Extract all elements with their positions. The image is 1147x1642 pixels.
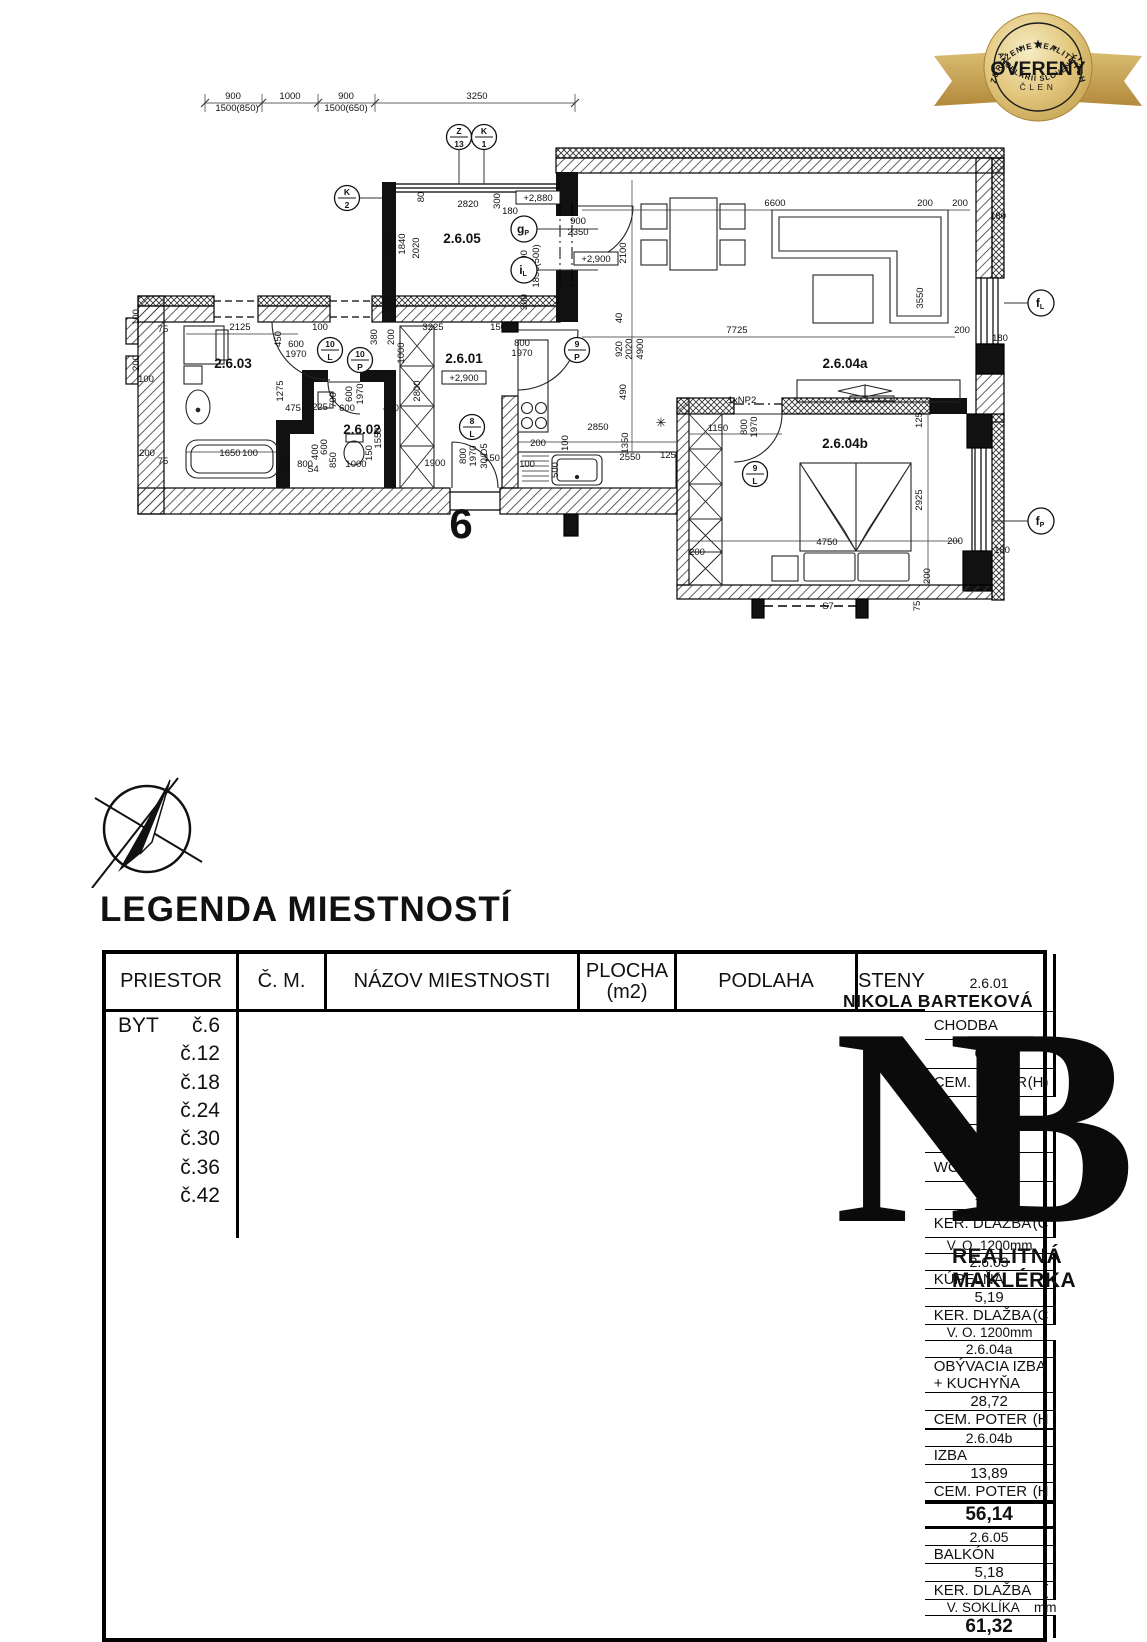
header-nazov: NÁZOV MIESTNOSTI [327,954,580,1012]
dim-label: 200 [922,568,933,584]
podlaha-text: CEM. POTER [934,1411,1027,1428]
dim-label: 850 [328,452,339,468]
dim-label: 200 [139,448,155,459]
priestor-number: č.12 [180,1042,220,1066]
dim-label: 1000 [279,91,300,102]
dim-label: 900 [225,91,241,102]
legend-title: LEGENDA MIESTNOSTÍ [100,890,511,930]
plocha-cell: 5,18 [925,1564,1057,1582]
dim-label: 900 [338,91,354,102]
compass-needle-light [140,780,170,854]
dim-label: 150 [490,322,506,333]
room-label: 2.6.03 [214,356,252,371]
marker-bottom: L [469,429,474,439]
dim-label: 1970 [511,348,532,359]
dim-label: 2100 [618,242,629,263]
dim-label: 1970 [468,445,479,466]
flat-number: 6 [449,500,472,547]
podlaha-text: KER. DLAŽBA [934,1582,1032,1599]
dim-label: 900 [570,216,586,227]
podlaha-text: CEM. POTER [934,1483,1027,1500]
bedroom-top-wall [677,398,930,414]
cm-cell: 2.6.05 [925,1529,1057,1546]
letter-marker-circle [1028,508,1054,534]
realtor-role: REALITNÁ MAKLÉRKA [952,1245,1147,1293]
dim-label: 2020 [624,338,635,359]
dim-label: 3550 [915,287,926,308]
marker-bottom: 13 [454,139,464,149]
dim-label: 180 [992,333,1008,344]
dim-label: 125 [914,412,925,428]
header-plocha: PLOCHA (m2) [580,954,677,1012]
dim-label: 2800 [412,380,423,401]
dim-label: 3250 [466,91,487,102]
priestor-cell: č.42 [106,1182,236,1210]
priestor-number: č.24 [180,1099,220,1123]
priestor-number: č.30 [180,1127,220,1151]
annotation-label: 1xNP2 [728,395,757,406]
steny-cell: V. O. 1200mm [925,1325,1057,1341]
dim-label: 2820 [457,199,478,210]
dim-label: 180 [384,295,395,311]
dim-label: 100 [138,374,154,385]
priestor-number: č.18 [180,1071,220,1095]
room-label: 2.6.01 [445,351,483,366]
podlaha-code: (C [1033,1307,1049,1324]
byt-label: BYT [118,1014,159,1038]
dim-label: 1500(850) [215,103,258,114]
dim-label: 200 [917,198,933,209]
dim-label: 200 [530,438,546,449]
overeny-badge-svg: ZDRUŽENIE REALITNÝCH ★ ★ ★ OVERENÝ ČLEN … [930,6,1146,132]
dim-label: 7725 [726,325,747,336]
header-podlaha: PODLAHA [677,954,858,1012]
dim-label: 2550 [619,452,640,463]
compass-needle-dark [118,780,170,872]
dim-label: 2350 [567,227,588,238]
letter-marker-circle [1028,290,1054,316]
dim-label: 490 [618,384,629,400]
dim-label: 40 [614,313,625,324]
plocha-cell: 28,72 [925,1393,1057,1411]
dim-label: 400 [383,403,399,414]
marker-top: 8 [470,416,475,426]
dim-label: 180 [994,545,1010,556]
podlaha-text: KER. DLAŽBA [934,1307,1032,1324]
priestor-cell: č.30 [106,1125,236,1153]
dim-label: 500 [550,462,561,478]
marker-top: 10 [355,349,365,359]
dim-label: 125 [660,450,676,461]
dim-label: 1150 [708,423,728,434]
marker-top: Z [456,126,461,136]
dim-label: 900 [281,455,292,471]
elevation-label: +2,880 [523,193,552,204]
dim-label: 200 [947,536,963,547]
header-cm: Č. M. [239,954,327,1012]
dim-label: 200 [131,355,142,371]
podlaha-code: ( [1043,1582,1048,1599]
badge-sub-text: ČLEN [1020,82,1057,92]
room-label: 2.6.04a [822,356,868,371]
dim-label: 100 [312,322,328,333]
priestor-cell: č.36 [106,1153,236,1181]
dim-label: 6600 [764,198,785,209]
dim-label: 1920 [383,233,394,254]
podlaha-cell: KER. DLAŽBA( [925,1582,1057,1600]
dim-label: 1500(650) [324,103,367,114]
dim-label: 200 [952,198,968,209]
marker-bottom: 1 [482,139,487,149]
dim-label: 100 [131,309,142,325]
dim-label: 2125 [229,322,250,333]
dim-label: 75 [912,601,923,612]
cm-cell: 2.6.04b [925,1430,1057,1447]
plocha-cell: 13,89 [925,1465,1057,1483]
dim-label: 450 [273,331,284,347]
podlaha-code: (H [1033,1411,1049,1428]
dim-label: 1350 [620,432,631,453]
podlaha-cell: CEM. POTER(H [925,1483,1057,1501]
annotation-label: ✳ [656,415,667,430]
marker-bottom: L [327,352,332,362]
dim-label: 100 [519,459,535,470]
marker-top: K [481,126,488,136]
dim-label: 1275 [275,380,286,401]
priestor-cell: č.18 [106,1069,236,1097]
dim-label: 180 [502,206,518,217]
dim-label: 30/D5 [479,443,490,468]
dim-label: 100 [560,435,571,451]
north-compass-svg [90,770,208,888]
dim-label: 1650 [219,448,240,459]
marker-top: 9 [575,339,580,349]
podlaha-cell: CEM. POTER(H [925,1411,1057,1429]
nazov-cell: IZBA [925,1447,1057,1465]
priestor-cell: č.12 [106,1040,236,1068]
dim-label: 380 [369,329,380,345]
header-priestor: PRIESTOR [106,954,239,1012]
steny-cell: V. SOKLÍKA mm [925,1600,1057,1616]
dim-label: 100 [242,448,258,459]
overeny-badge: ZDRUŽENIE REALITNÝCH ★ ★ ★ OVERENÝ ČLEN … [930,6,1146,132]
dim-label: 75 [158,456,169,467]
letter-marker-circle [511,257,537,283]
dim-label: 2925 [914,489,925,510]
marker-top: K [344,187,351,197]
badge-stars: ★ [1033,37,1044,51]
marker-top: 9 [753,463,758,473]
elevation-label: +2,900 [581,254,610,265]
dim-label: 700 [328,392,339,408]
dim-label: 475 [285,403,301,414]
priestor-number: č.42 [180,1184,220,1208]
room-label: 2.6.04b [822,436,868,451]
dim-label: 300 [492,193,503,209]
priestor-cell: č.24 [106,1097,236,1125]
dim-label: 2850 [587,422,608,433]
priestor-cell: BYTč.6 [106,1012,236,1040]
header-plocha-line1: PLOCHA [586,961,668,982]
dim-label: 1840 [397,233,408,254]
marker-bottom: L [752,476,757,486]
dim-label: 180 [990,211,1006,222]
exterior-walls [126,148,1004,618]
annotation-label: S7 [822,601,834,612]
north-compass [90,770,208,888]
dim-label: 1900 [424,458,445,469]
dim-label: 600 [339,403,355,414]
room-label: 2.6.05 [443,231,481,246]
podlaha-code: (H [1033,1483,1049,1500]
marker-top: 10 [325,339,335,349]
dim-label: 3225 [422,322,443,333]
nazov-cell: OBÝVACIA IZBA + KUCHYŇA [925,1358,1057,1393]
marker-bottom: P [357,362,363,372]
priestor-number: č.6 [192,1014,220,1038]
dim-label: 600 [344,386,355,402]
dim-label: 2020 [411,237,422,258]
annotation-label: S4 [307,464,319,475]
podlaha-cell: KER. DLAŽBA(C [925,1307,1057,1325]
dim-label: 1970 [285,349,306,360]
plocha-cell: 61,32 [925,1616,1057,1638]
marker-bottom: 2 [345,200,350,210]
dim-label: 80 [416,192,427,203]
dim-label: 150 [364,445,375,461]
header-plocha-line2: (m2) [606,982,647,1003]
priestor-cell [106,1210,236,1238]
dim-label: 4750 [816,537,837,548]
nazov-cell: BALKÓN [925,1546,1057,1564]
dim-label: 225 [312,402,328,413]
dim-label: 200 [954,325,970,336]
monogram-letter-b: B [948,985,1136,1267]
badge-star-left: ★ [1018,44,1024,52]
dim-label: 300 [519,294,530,310]
plocha-cell: 56,14 [925,1504,1057,1527]
dim-label: 75 [158,324,169,335]
dim-label: 200 [689,547,705,558]
cm-cell: 2.6.04a [925,1341,1057,1358]
priestor-column: BYTč.6č.12č.18č.24č.30č.36č.42 [106,1012,239,1238]
priestor-number: č.36 [180,1156,220,1180]
elevation-label: +2,900 [449,373,478,384]
room-label: 2.6.02 [343,422,381,437]
dim-label: 1970 [355,383,366,404]
dim-label: 1970 [749,416,760,437]
badge-star-right: ★ [1052,44,1058,52]
marker-bottom: P [574,352,580,362]
dim-label: 1000 [396,342,407,363]
dim-label: 4900 [635,338,646,359]
